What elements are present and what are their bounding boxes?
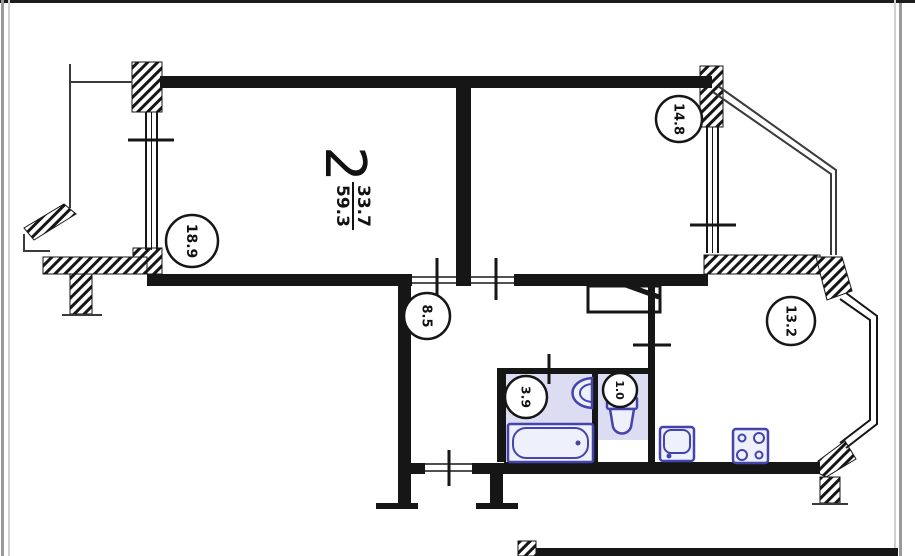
room-area-badge-wc: 1.0 <box>603 373 637 407</box>
floor-plan-page: 18.9 14.8 8.5 13.2 3.9 1.0 2 33.7 59.3 <box>0 0 915 556</box>
hatch-bay-stub <box>820 477 840 503</box>
kitchen-sink-icon <box>660 427 694 461</box>
room-area-badge-hallway: 8.5 <box>404 293 450 339</box>
svg-text:8.5: 8.5 <box>419 304 434 327</box>
top-exterior-wall <box>160 76 712 88</box>
entry-wall-left <box>411 463 425 474</box>
total-area-label: 59.3 <box>332 185 352 227</box>
living-room-south-wall <box>147 274 412 286</box>
svg-text:3.9: 3.9 <box>519 386 534 408</box>
room-area-badge-bathroom: 3.9 <box>505 376 547 418</box>
svg-text:14.8: 14.8 <box>671 103 686 135</box>
page-right-border-inner <box>894 0 896 556</box>
bathtub-icon <box>508 424 593 462</box>
hatch-left-stub <box>70 274 92 314</box>
entry-cap-left <box>376 503 418 509</box>
entry-wall-right <box>472 463 504 474</box>
entry-cap-right <box>476 503 518 509</box>
bedroom-window <box>707 127 718 253</box>
hatch-left-south-strip <box>43 257 147 274</box>
right-balcony <box>713 86 836 255</box>
bathroom-west-wall <box>497 368 506 462</box>
svg-text:13.2: 13.2 <box>783 305 798 337</box>
door-pier <box>456 274 471 286</box>
next-plan-wall-fragment <box>536 548 898 556</box>
page-top-border <box>0 0 915 3</box>
hatch-left-top-corner <box>132 62 162 112</box>
svg-text:1.0: 1.0 <box>613 380 626 400</box>
rooms-count-label: 2 <box>312 146 377 182</box>
entry-side-wall <box>490 474 503 505</box>
page-right-border <box>899 3 902 556</box>
left-balcony <box>24 64 132 251</box>
page-left-border-inner <box>8 0 10 556</box>
next-plan-hatch-fragment <box>518 541 536 556</box>
living-area-label: 33.7 <box>353 185 373 227</box>
bedroom-south-wall <box>514 274 708 286</box>
walls <box>147 76 820 509</box>
inter-room-wall <box>456 88 471 274</box>
svg-text:18.9: 18.9 <box>183 224 199 259</box>
hatch-bay-bottom <box>818 441 856 477</box>
apartment-summary-label: 2 33.7 59.3 <box>312 146 377 230</box>
left-balcony-hatch <box>24 204 76 240</box>
page-left-border <box>1 0 4 556</box>
room-area-badge-living-room: 18.9 <box>166 215 218 267</box>
kitchen-bay-window <box>840 293 877 448</box>
floor-plan-drawing: 18.9 14.8 8.5 13.2 3.9 1.0 2 33.7 59.3 <box>0 0 915 556</box>
room-area-badge-bedroom: 14.8 <box>656 96 702 142</box>
stove-icon <box>733 429 768 463</box>
south-exterior-wall <box>504 462 820 474</box>
living-room-window <box>146 112 157 250</box>
room-area-badge-kitchen: 13.2 <box>767 297 815 345</box>
hatch-balcony-bottom-strip <box>704 255 820 274</box>
